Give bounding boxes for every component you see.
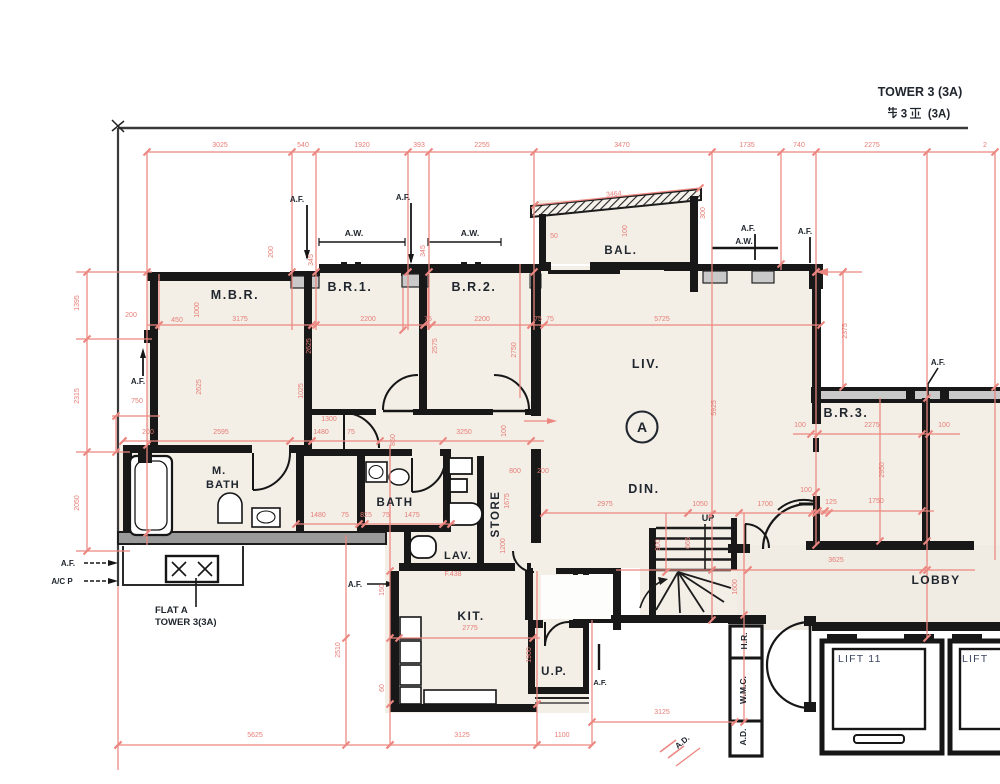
svg-text:LIFT 11: LIFT 11 — [838, 653, 882, 665]
svg-text:200: 200 — [125, 312, 137, 319]
svg-text:1395: 1395 — [74, 295, 81, 311]
svg-text:2625: 2625 — [196, 379, 203, 395]
svg-text:1735: 1735 — [739, 142, 755, 149]
svg-text:A: A — [637, 419, 647, 435]
svg-text:A/C P: A/C P — [51, 577, 73, 586]
svg-text:1750: 1750 — [868, 498, 884, 505]
svg-text:75: 75 — [347, 429, 355, 436]
svg-text:A.F.: A.F. — [931, 358, 945, 367]
svg-text:A.F.: A.F. — [798, 227, 812, 236]
svg-text:75: 75 — [382, 512, 390, 519]
svg-text:A.D.: A.D. — [738, 729, 748, 746]
svg-text:1000: 1000 — [194, 302, 201, 318]
svg-text:825: 825 — [360, 512, 372, 519]
svg-text:450: 450 — [171, 317, 183, 324]
svg-text:2775: 2775 — [462, 625, 478, 632]
svg-text:100: 100 — [622, 225, 629, 237]
svg-text:BATH: BATH — [376, 497, 413, 509]
svg-text:150: 150 — [379, 584, 386, 596]
svg-text:A.F.: A.F. — [741, 224, 755, 233]
svg-text:393: 393 — [413, 142, 425, 149]
svg-text:1050: 1050 — [692, 501, 708, 508]
svg-text:2375: 2375 — [842, 323, 849, 339]
svg-text:2510: 2510 — [335, 642, 342, 658]
svg-text:BATH: BATH — [206, 479, 240, 491]
svg-text:1900: 1900 — [526, 647, 533, 663]
svg-text:60: 60 — [379, 684, 386, 692]
svg-text:2200: 2200 — [360, 316, 376, 323]
svg-text:B.R.2.: B.R.2. — [451, 280, 496, 294]
svg-text:5625: 5625 — [247, 732, 263, 739]
svg-text:200: 200 — [268, 246, 275, 258]
svg-text:2200: 2200 — [474, 316, 490, 323]
svg-text:3250: 3250 — [456, 429, 472, 436]
svg-text:3625: 3625 — [828, 557, 844, 564]
svg-text:W.M.C.: W.M.C. — [738, 676, 748, 704]
svg-text:1675: 1675 — [504, 493, 511, 509]
svg-text:H.R.: H.R. — [739, 633, 749, 650]
svg-text:665: 665 — [685, 537, 692, 549]
svg-text:2275: 2275 — [864, 142, 880, 149]
svg-text:1480: 1480 — [310, 512, 326, 519]
svg-text:75: 75 — [534, 316, 542, 323]
svg-text:A.F.: A.F. — [396, 193, 410, 202]
svg-text:1600: 1600 — [732, 579, 739, 595]
svg-text:5925: 5925 — [711, 400, 718, 416]
svg-text:3: 3 — [901, 109, 907, 121]
svg-text:900: 900 — [655, 539, 662, 551]
svg-text:125: 125 — [825, 499, 837, 506]
svg-text:3125: 3125 — [654, 709, 670, 716]
svg-text:200: 200 — [142, 429, 154, 436]
svg-text:TOWER 3(3A): TOWER 3(3A) — [155, 617, 217, 628]
svg-text:(3A): (3A) — [928, 109, 951, 121]
svg-text:A.F.: A.F. — [61, 559, 75, 568]
svg-text:LOBBY: LOBBY — [912, 573, 961, 587]
svg-text:A.W.: A.W. — [461, 228, 479, 238]
svg-text:M.: M. — [212, 465, 226, 477]
svg-text:3175: 3175 — [232, 316, 248, 323]
svg-text:1700: 1700 — [757, 501, 773, 508]
svg-text:LAV.: LAV. — [444, 550, 472, 562]
svg-text:A.F.: A.F. — [593, 678, 606, 687]
svg-text:FLAT A: FLAT A — [155, 605, 188, 616]
svg-text:2950: 2950 — [879, 462, 886, 478]
svg-text:1200: 1200 — [500, 538, 507, 554]
svg-text:2595: 2595 — [213, 429, 229, 436]
svg-text:1100: 1100 — [554, 732, 569, 739]
svg-text:750: 750 — [131, 398, 143, 405]
svg-text:345: 345 — [308, 254, 315, 266]
svg-text:100: 100 — [938, 422, 950, 429]
svg-text:1300: 1300 — [321, 416, 337, 423]
svg-text:A.F.: A.F. — [290, 195, 304, 204]
svg-text:A.F.: A.F. — [131, 377, 145, 386]
svg-text:3125: 3125 — [454, 732, 470, 739]
svg-text:345: 345 — [420, 245, 427, 257]
svg-text:B.R.3.: B.R.3. — [823, 406, 868, 420]
svg-text:DIN.: DIN. — [628, 482, 659, 496]
svg-text:1025: 1025 — [298, 383, 305, 399]
svg-text:A.W.: A.W. — [345, 228, 363, 238]
svg-text:2255: 2255 — [474, 142, 490, 149]
svg-text:100: 100 — [794, 422, 806, 429]
svg-text:A.F.: A.F. — [348, 580, 362, 589]
svg-text:2575: 2575 — [432, 338, 439, 354]
svg-text:5725: 5725 — [654, 316, 670, 323]
svg-text:M.B.R.: M.B.R. — [211, 288, 260, 302]
svg-text:U.P.: U.P. — [541, 666, 567, 678]
svg-text:BAL.: BAL. — [604, 245, 637, 257]
svg-text:800: 800 — [509, 468, 521, 475]
svg-text:2625: 2625 — [306, 338, 313, 354]
svg-text:1920: 1920 — [354, 142, 370, 149]
svg-text:100: 100 — [501, 425, 508, 437]
svg-text:1475: 1475 — [404, 512, 420, 519]
svg-text:A.W.: A.W. — [735, 237, 752, 246]
svg-text:B.R.1.: B.R.1. — [327, 280, 372, 294]
svg-text:3025: 3025 — [212, 142, 228, 149]
svg-text:F.438: F.438 — [444, 571, 461, 578]
svg-text:200: 200 — [537, 468, 549, 475]
svg-text:2275: 2275 — [864, 422, 880, 429]
svg-text:100: 100 — [800, 487, 812, 494]
svg-text:3470: 3470 — [614, 142, 630, 149]
svg-text:50: 50 — [550, 233, 558, 240]
svg-text:2050: 2050 — [74, 495, 81, 511]
svg-text:KIT.: KIT. — [457, 609, 484, 623]
svg-text:540: 540 — [297, 142, 309, 149]
svg-text:850: 850 — [390, 434, 397, 446]
svg-text:2975: 2975 — [597, 501, 613, 508]
svg-text:2750: 2750 — [511, 342, 518, 358]
svg-text:2315: 2315 — [74, 388, 81, 404]
svg-text:300: 300 — [700, 207, 707, 219]
svg-text:STORE: STORE — [490, 491, 502, 538]
svg-text:2: 2 — [983, 142, 987, 149]
svg-text:75: 75 — [341, 512, 349, 519]
svg-text:LIFT: LIFT — [962, 653, 988, 665]
svg-text:1480: 1480 — [313, 429, 329, 436]
svg-text:LIV.: LIV. — [632, 357, 660, 371]
svg-text:TOWER 3 (3A): TOWER 3 (3A) — [878, 85, 963, 99]
svg-text:740: 740 — [793, 142, 805, 149]
